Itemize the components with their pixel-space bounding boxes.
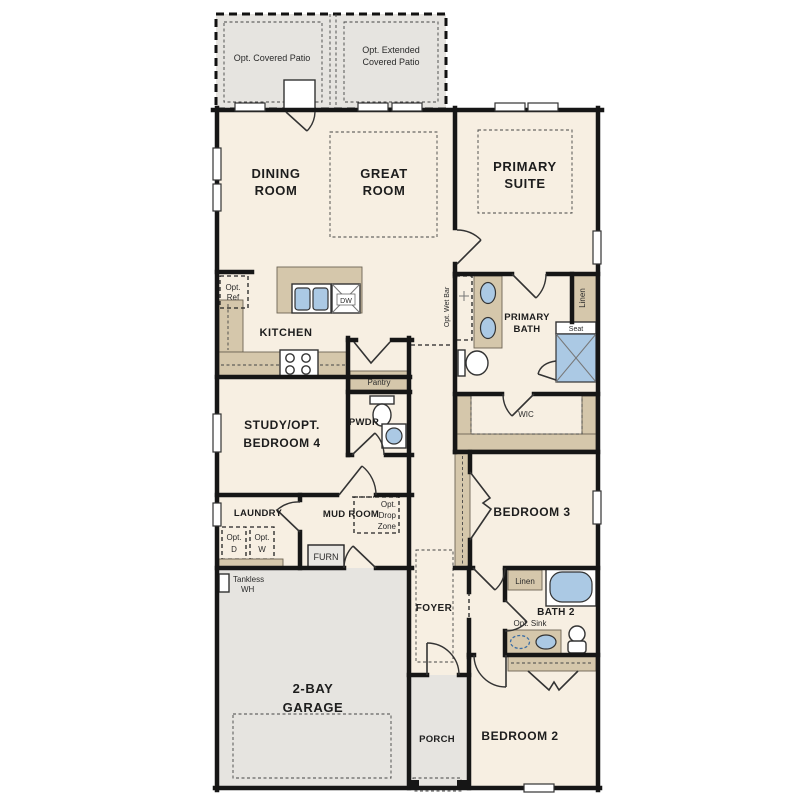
label-opt-w-1: Opt. [254,533,269,542]
pwdr-sink [386,428,402,444]
bath2-toilet-bowl [569,626,585,642]
label-linen-bath2: Linen [515,577,535,586]
label-wic: WIC [518,410,534,419]
label-mud-room: MUD ROOM [323,509,379,520]
primary-sink-1 [481,283,496,304]
burner-3 [286,366,294,374]
label-opt-ref-2: Ref [227,293,240,302]
wic-shelf-bottom [457,434,596,450]
primary-toilet-bowl [466,351,488,375]
label-opt-wet-bar: Opt. Wet Bar [444,286,451,327]
label-opt-extended-patio-line2: Covered Patio [362,57,419,67]
window-dining-left-1 [213,148,221,180]
window-study-left [213,414,221,452]
label-dining-2: ROOM [255,183,298,198]
label-laundry: LAUNDRY [234,508,283,519]
label-great-2: ROOM [363,183,406,198]
window-suite-top-1 [495,103,525,111]
window-bedroom3-right [593,491,601,524]
garage-slab [219,568,409,788]
floor-plan-page: Opt. Covered Patio Opt. Extended Covered… [0,0,810,810]
label-furn: FURN [314,552,339,562]
window-great-top-1 [358,103,388,111]
label-primary-bath-1: PRIMARY [504,312,550,323]
window-suite-top-2 [528,103,558,111]
primary-toilet-tank [458,350,465,376]
kitchen-sink-left-basin [295,288,310,310]
window-dining-top [235,103,265,111]
label-seat: Seat [569,326,583,333]
primary-sink-2 [481,318,496,339]
label-bath2: BATH 2 [537,607,575,618]
window-laundry-left [213,503,221,526]
label-pwdr: PWDR [349,417,379,428]
label-opt-covered-patio: Opt. Covered Patio [234,53,311,63]
patio-area: Opt. Covered Patio Opt. Extended Covered… [216,14,446,109]
window-suite-right [593,231,601,264]
fireplace-box [284,80,315,111]
label-bedroom3: BEDROOM 3 [493,505,570,519]
label-opt-d-1: Opt. [226,533,241,542]
label-primary-suite-1: PRIMARY [493,159,557,174]
burner-1 [286,354,294,362]
window-bedroom2-bottom [524,784,554,792]
label-kitchen: KITCHEN [259,327,312,339]
bath2-toilet-base [568,641,586,653]
label-bedroom2: BEDROOM 2 [481,729,558,743]
label-primary-suite-2: SUITE [504,176,545,191]
tankless-water-heater [219,574,229,592]
label-tankless-2: WH [241,585,255,594]
label-opt-ref-1: Opt. [225,283,240,292]
label-porch: PORCH [419,734,455,745]
burner-4 [302,366,310,374]
label-opt-d-2: D [231,545,237,554]
pwdr-toilet-tank [370,396,394,404]
kitchen-sink-right-basin [313,288,328,310]
label-garage-2: GARAGE [283,700,344,715]
label-great-1: GREAT [360,166,408,181]
label-foyer: FOYER [416,603,453,614]
label-primary-bath-2: BATH [514,324,541,335]
label-dining-1: DINING [251,166,300,181]
window-great-top-2 [392,103,422,111]
bathtub [550,572,592,602]
bath2-sink [536,635,556,649]
floor-plan-canvas: Opt. Covered Patio Opt. Extended Covered… [0,0,810,810]
stove [280,350,318,377]
label-drop-zone-2: Drop [379,511,397,520]
burner-2 [302,354,310,362]
label-study-1: STUDY/OPT. [244,418,320,432]
label-drop-zone-1: Opt. [381,500,396,509]
label-dw: DW [340,298,352,305]
label-opt-sink: Opt. Sink [514,619,548,628]
label-opt-extended-patio-line1: Opt. Extended [362,45,420,55]
label-opt-w-2: W [258,545,266,554]
label-pantry: Pantry [367,378,390,387]
porch-slab [409,675,469,788]
label-drop-zone-3: Zone [378,522,397,531]
label-garage-1: 2-BAY [293,681,334,696]
label-tankless-1: Tankless [233,575,264,584]
label-study-2: BEDROOM 4 [243,436,320,450]
label-linen-primary: Linen [578,288,587,308]
window-dining-left-2 [213,184,221,211]
